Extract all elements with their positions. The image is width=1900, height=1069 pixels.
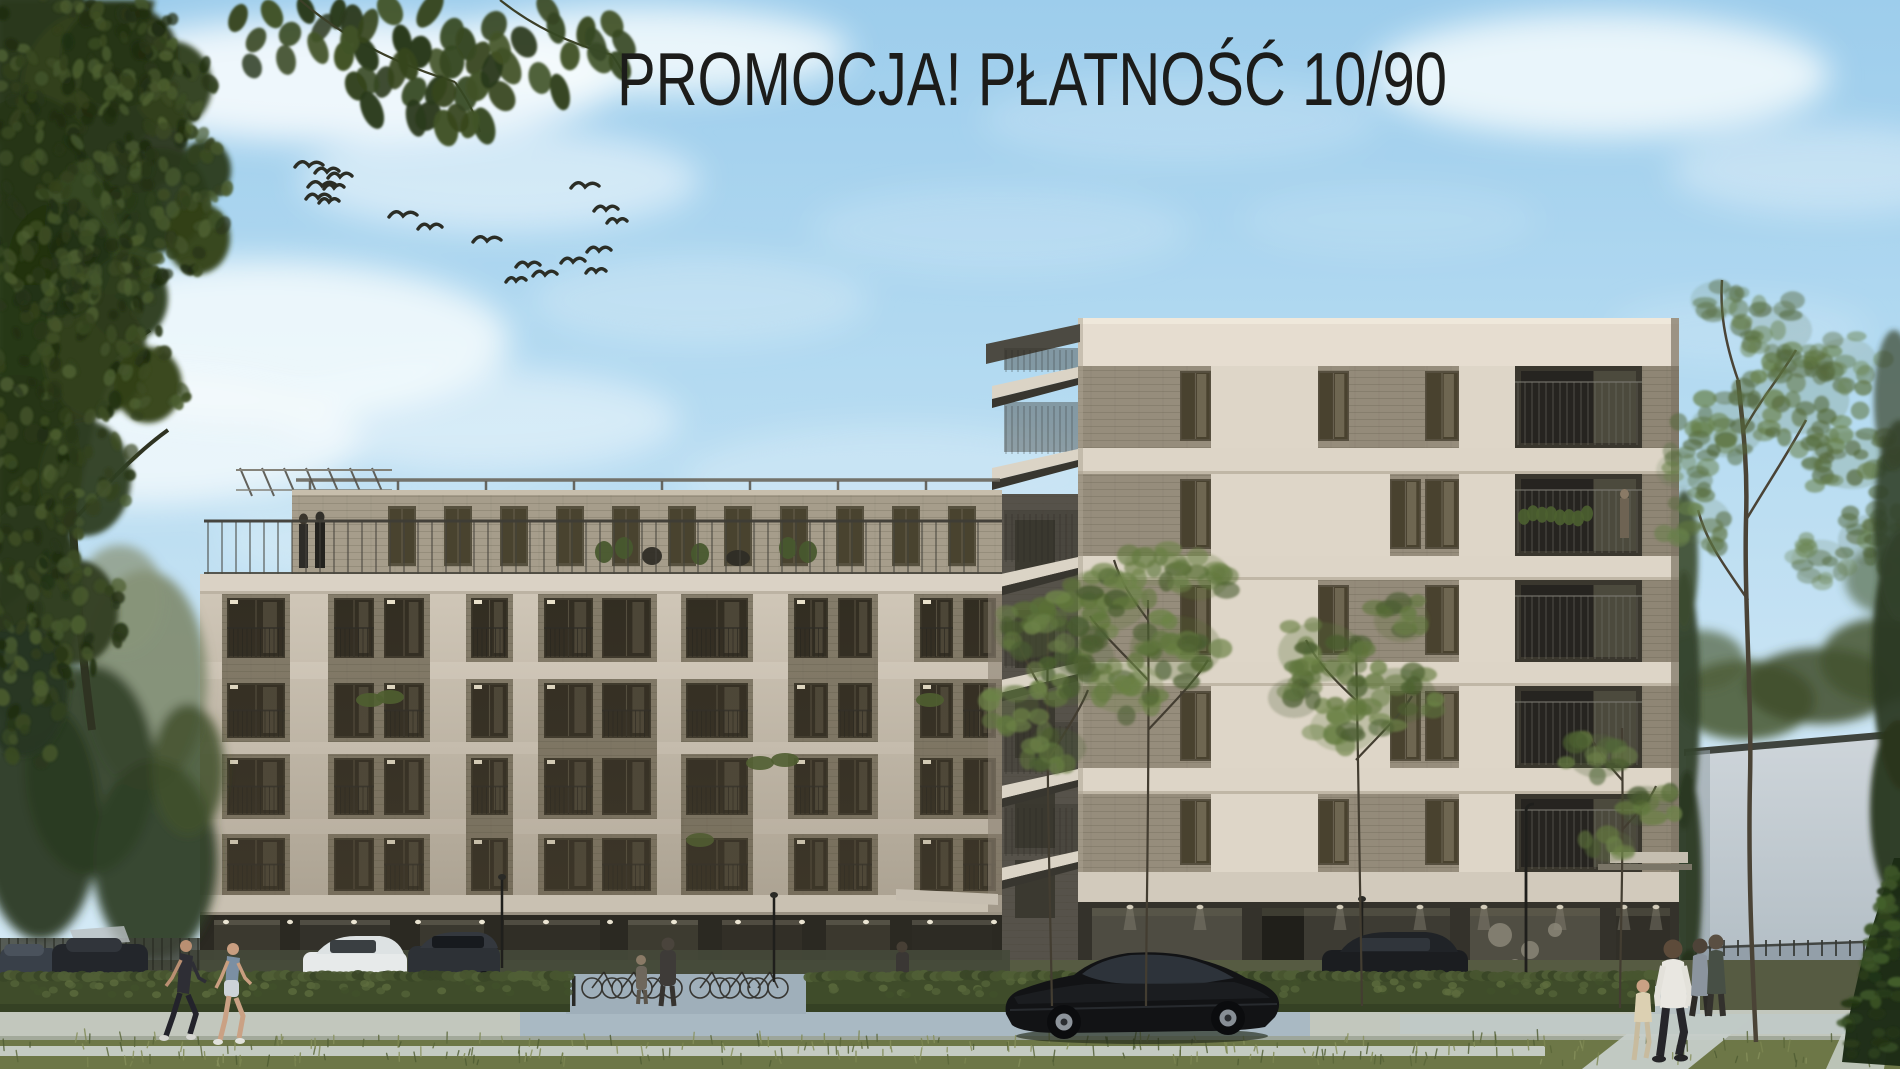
svg-text:PROMOCJA! PŁATNOŚĆ 10/90: PROMOCJA! PŁATNOŚĆ 10/90 bbox=[617, 37, 1447, 121]
